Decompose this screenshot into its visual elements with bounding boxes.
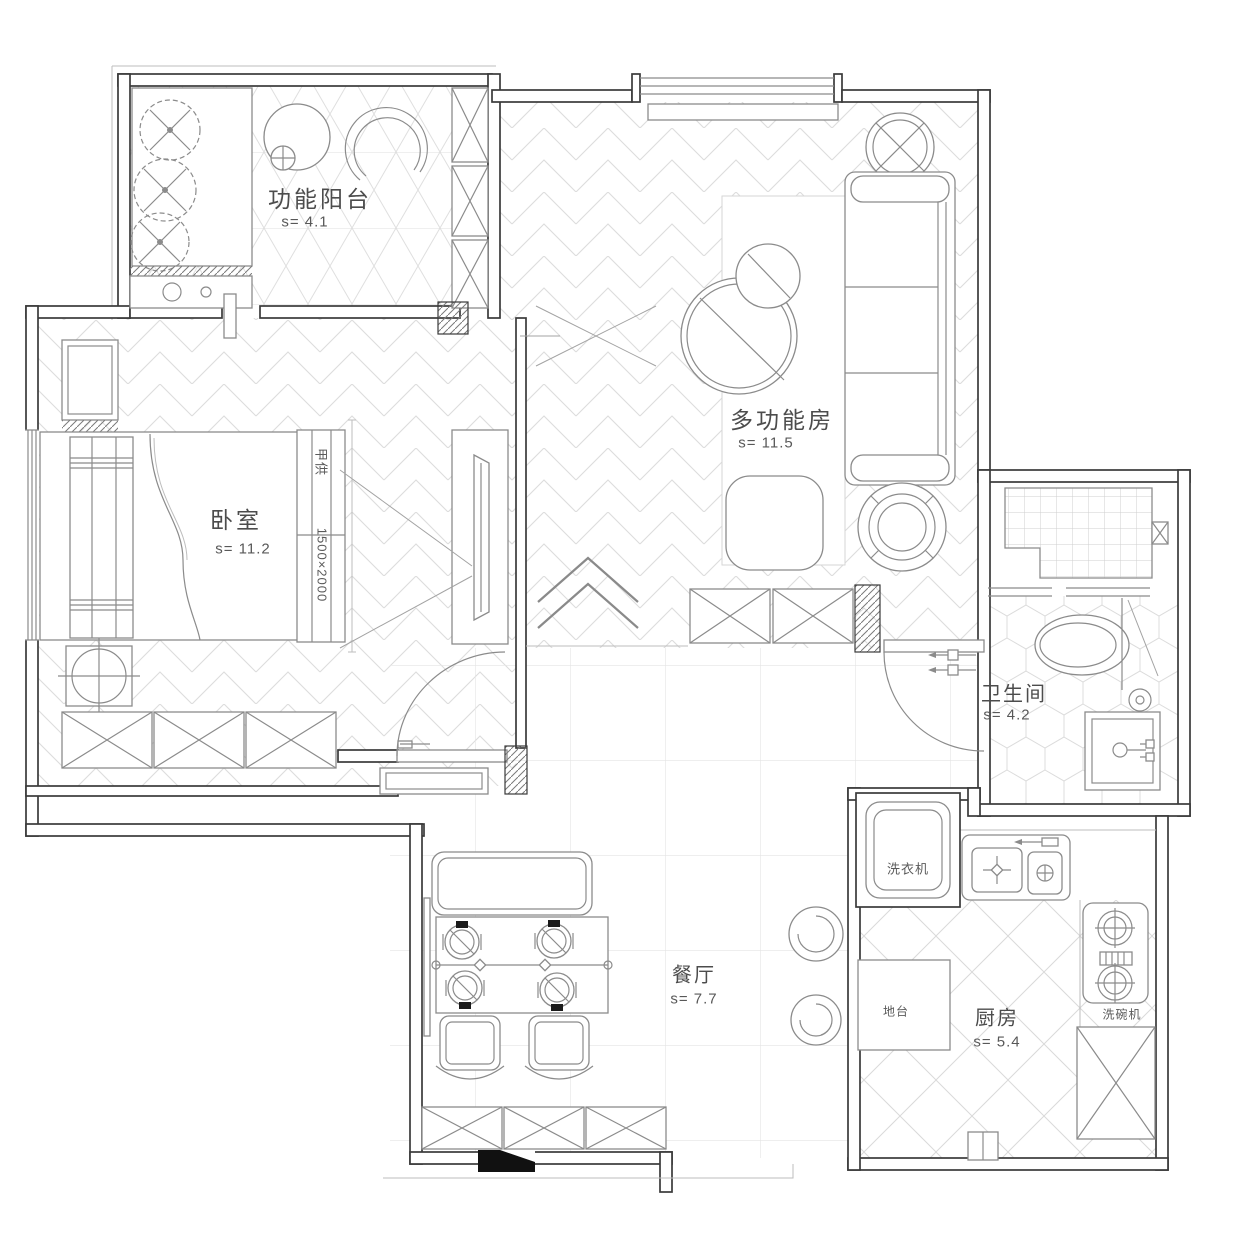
section-mark xyxy=(478,1150,535,1172)
bed xyxy=(40,432,298,640)
hatch-band xyxy=(130,266,252,276)
ceiling-fan-icon xyxy=(866,113,934,181)
shower-tray xyxy=(1005,488,1152,578)
bed-size-label: 1500×2000 xyxy=(315,528,330,602)
shower-divider xyxy=(988,588,1150,596)
balcony-door-leaf xyxy=(224,294,236,338)
bedside-stool xyxy=(58,638,140,714)
multi-room-label: 多功能房 xyxy=(730,401,834,435)
dishwasher-label: 洗碗机 xyxy=(1102,1006,1141,1023)
dining-label: 餐厅 xyxy=(672,959,716,988)
multi-room-area: s= 11.5 xyxy=(738,435,794,452)
shoe-cabinet xyxy=(380,768,488,794)
nightstand xyxy=(62,340,118,420)
shower-drain-box xyxy=(1152,522,1168,544)
tv-cabinet xyxy=(452,430,508,644)
bathroom-area: s= 4.2 xyxy=(983,707,1030,724)
balcony-cabinet xyxy=(452,88,488,308)
floor-plan: 功能阳台 s= 4.1 卧室 s= 11.2 多功能房 s= 11.5 卫生间 … xyxy=(0,0,1242,1244)
kitchen-sink xyxy=(962,835,1070,900)
vanity-sink xyxy=(1085,712,1160,790)
balcony-label: 功能阳台 xyxy=(268,180,372,214)
kitchen-door-stub xyxy=(968,1132,998,1160)
dining-chair xyxy=(525,1016,593,1079)
dining-bench xyxy=(432,852,592,915)
bedroom-area: s= 11.2 xyxy=(215,541,271,558)
owner-supplied-label: 甲供 xyxy=(313,448,332,476)
swivel-chair-icon xyxy=(858,483,946,571)
hatch-band xyxy=(62,420,118,432)
dining-cabinets xyxy=(422,1107,666,1149)
wall-hatch-block xyxy=(855,585,880,652)
multi-room-window xyxy=(632,74,842,102)
washing-machine xyxy=(856,793,960,907)
sofa xyxy=(845,172,955,485)
round-stool-icon xyxy=(791,995,841,1045)
wall-hatch-block xyxy=(505,746,527,794)
floor-plan-drawing xyxy=(0,0,1242,1244)
dishwasher-cabinet xyxy=(1077,1027,1155,1139)
bathroom-label: 卫生间 xyxy=(981,678,1047,707)
bedroom-window xyxy=(25,430,39,640)
mop-basin-icon xyxy=(264,104,330,170)
bedroom-label: 卧室 xyxy=(210,501,262,535)
pouf xyxy=(726,476,823,570)
screen-partition xyxy=(424,898,430,1036)
wall-hatch-block xyxy=(438,302,468,334)
kitchen-label: 厨房 xyxy=(975,1002,1019,1031)
stove xyxy=(1083,903,1148,1003)
balcony-area: s= 4.1 xyxy=(281,214,328,231)
dining-area: s= 7.7 xyxy=(670,991,717,1008)
dining-chair xyxy=(436,1016,504,1079)
round-stool-icon xyxy=(789,907,843,961)
window-sill xyxy=(648,104,838,120)
planter-box xyxy=(132,88,252,266)
platform-label: 地台 xyxy=(883,1003,909,1020)
bedroom-storage-cabinets xyxy=(62,712,336,768)
washer-label: 洗衣机 xyxy=(887,859,929,878)
kitchen-area: s= 5.4 xyxy=(973,1034,1020,1051)
